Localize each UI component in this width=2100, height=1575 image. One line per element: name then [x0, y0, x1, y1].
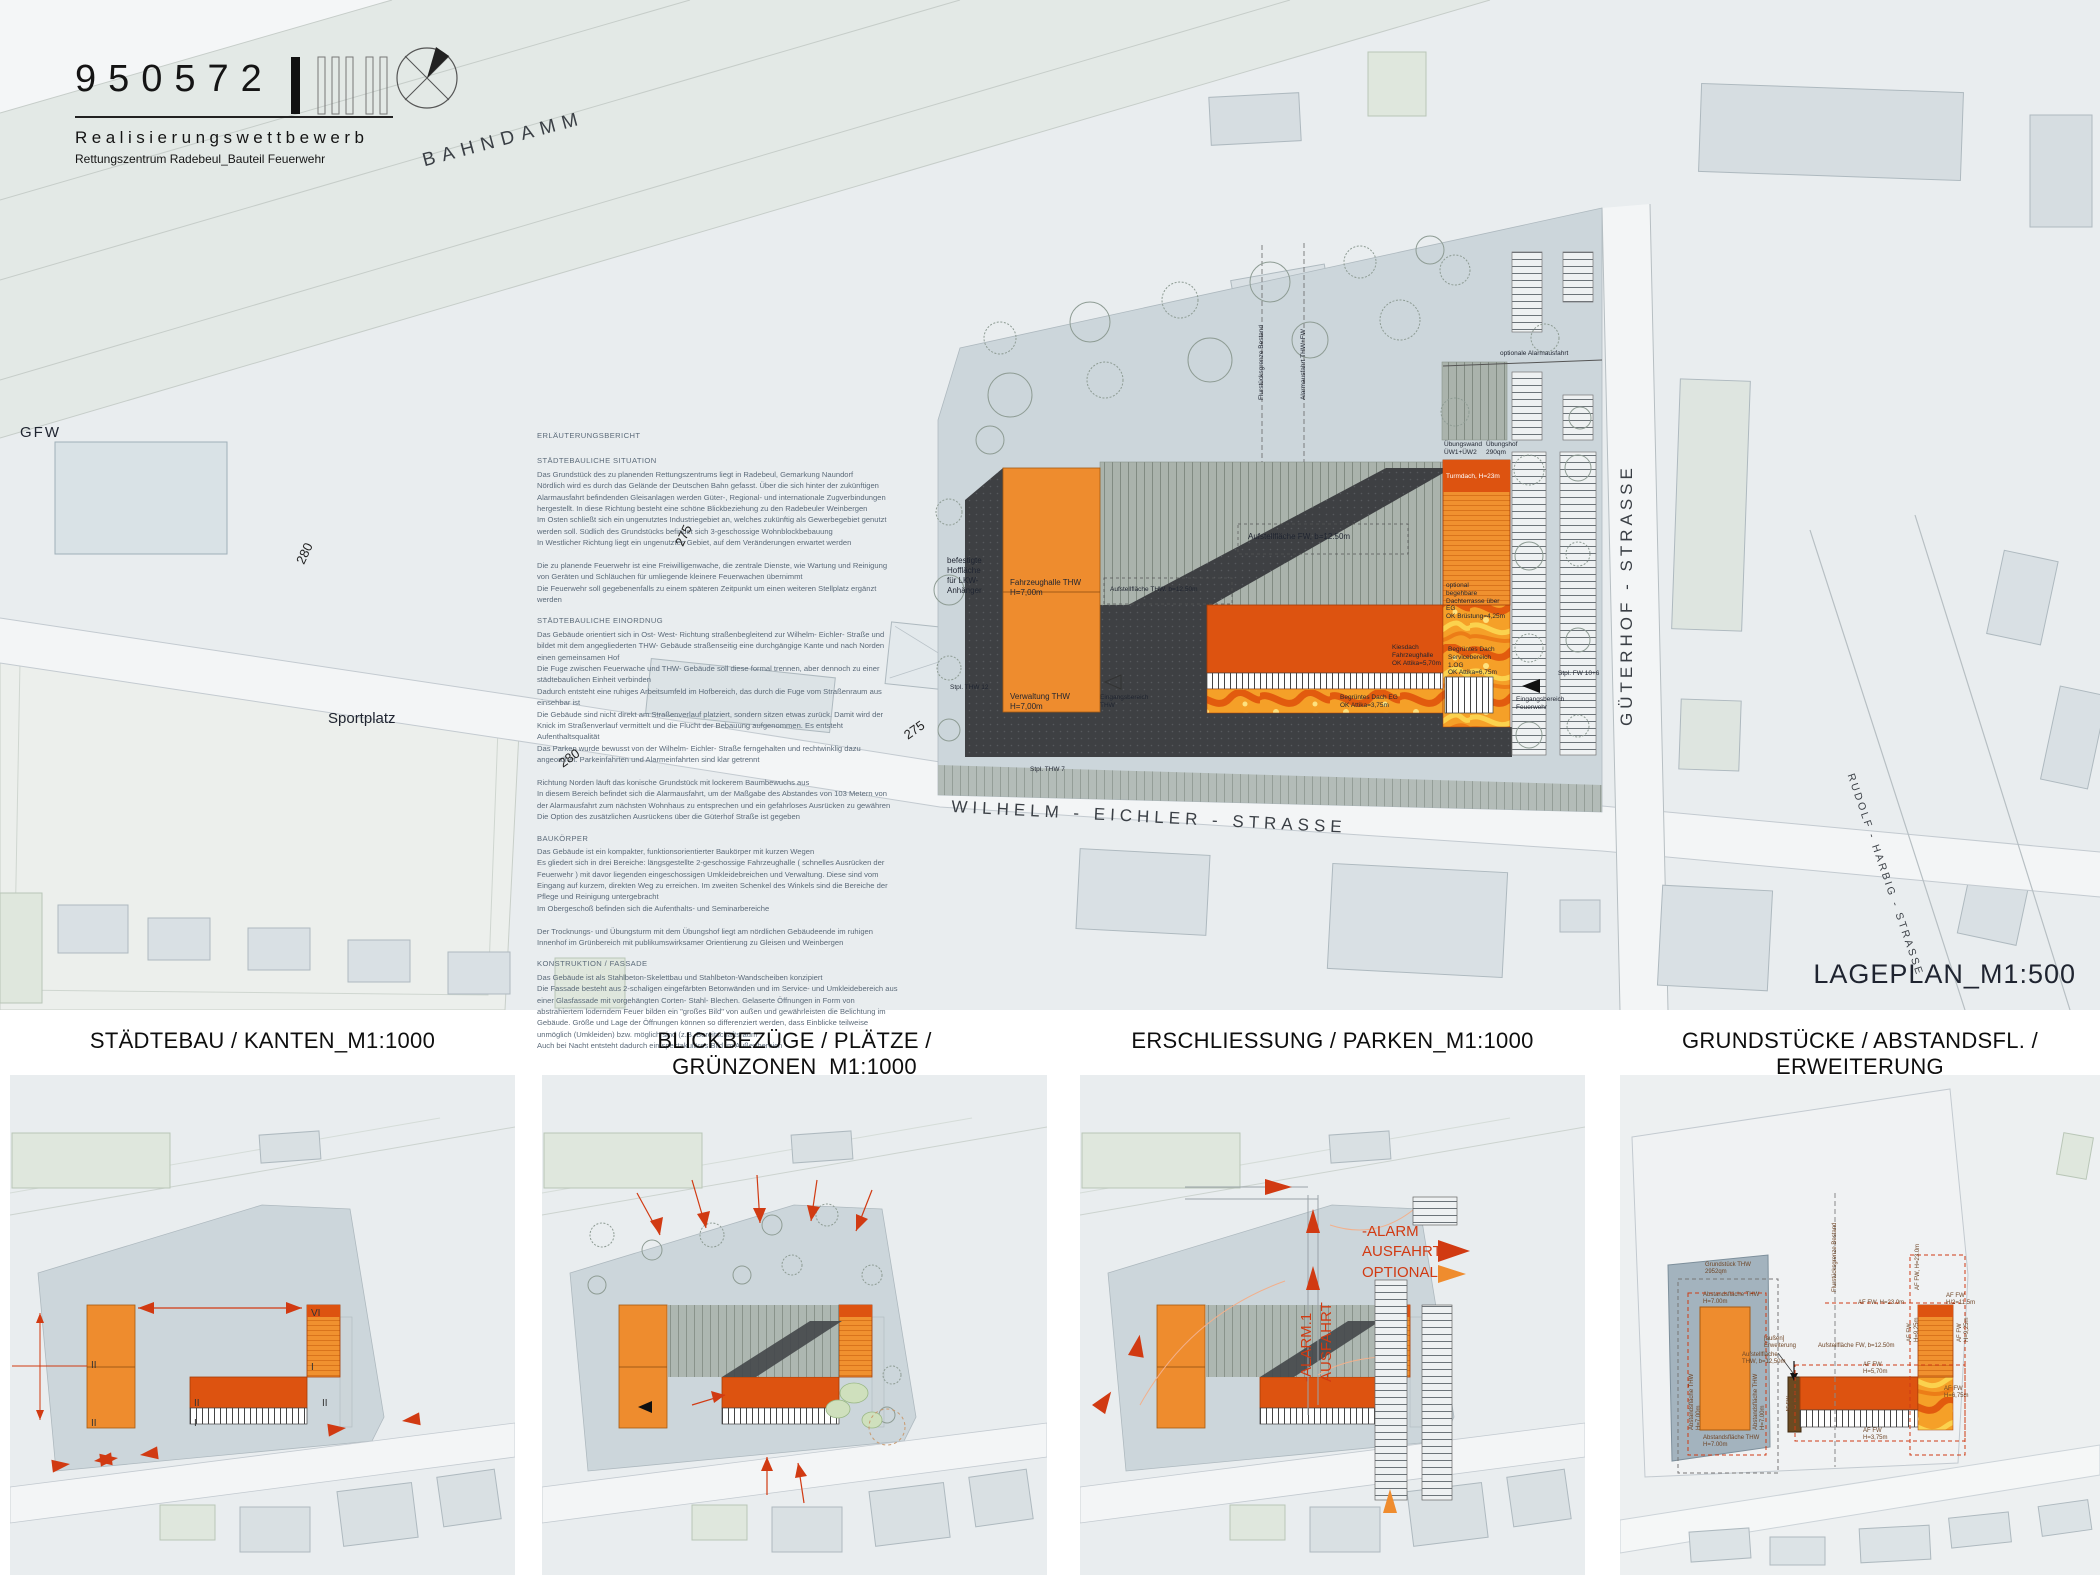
panel-blickbezuege [542, 1075, 1047, 1575]
street-label-gfw: GFW [20, 424, 61, 443]
explanatory-report: ERLÄUTERUNGSBERICHT STÄDTEBAULICHE SITUA… [537, 420, 899, 1060]
project-title: Rettungszentrum Radebeul_Bauteil Feuerwe… [75, 152, 325, 166]
panel-title-staedtebau: STÄDTEBAU / KANTEN_M1:1000 [10, 1028, 515, 1060]
alarm-ausfahrt-optional-label: -ALARM AUSFAHRT OPTIONAL [1362, 1222, 1442, 1283]
annotation-flurstuecksgrenze: Flurstücksgrenze Bestand [1258, 325, 1266, 400]
abstandsflaeche-label: Abstandsfläche THW H=7.00m [1689, 1374, 1703, 1430]
af-fw-label: AF FW H/2=11.5m [1946, 1293, 1975, 1307]
flurstuecksgrenze-label: Flurstücksgrenze Bestand [1832, 1223, 1839, 1292]
annotation-verwaltung-thw: Verwaltung THW H=7,00m [1010, 692, 1070, 712]
panel-title-blickbezuege: BLICKBEZÜGE / PLÄTZE / GRÜNZONEN_M1:1000 [542, 1028, 1047, 1060]
af-fw-label: AF FW H=5,70m [1863, 1362, 1888, 1376]
annotation-stellplatz-fw: Stpl. FW 10+6 [1558, 670, 1599, 678]
af-fw-label: AF FW, H=23.0m [1858, 1300, 1904, 1307]
annotation-begruentes-dach-eg: Begrüntes Dach EG OK Attika=3,75m [1340, 694, 1398, 710]
report-heading: STÄDTEBAULICHE EINORDNUG [537, 615, 899, 626]
annotation-uebungswand: Übungswand ÜW1+ÜW2 [1444, 441, 1482, 457]
annotation-uebungshof: Übungshof 290qm [1486, 441, 1517, 457]
report-heading: STÄDTEBAULICHE SITUATION [537, 455, 899, 466]
storey-mark: VI [311, 1308, 320, 1319]
report-body: Das Gebäude orientiert sich in Ost- West… [537, 629, 899, 823]
aufstellflaeche-thw-label: Aufstellfläche THW, b=12,50m [1742, 1352, 1786, 1366]
annotation-stellplatz-thw7: Stpl. THW 7 [1030, 766, 1065, 774]
annotation-eingang-fw: Eingangsbereich Feuerwehr [1516, 696, 1564, 712]
erweiterung-label: [außen] Erweiterung [1764, 1336, 1796, 1350]
panel-title-grundstuecke: GRUNDSTÜCKE / ABSTANDSFL. / ERWEITERUNG [1620, 1028, 2100, 1060]
annotation-dachterrasse: optional begehbare Dachterrasse über EG … [1446, 582, 1508, 621]
storey-mark: II [322, 1398, 328, 1409]
storey-mark: II [194, 1398, 200, 1409]
annotation-turmdach: Turmdach, H=23m [1446, 473, 1500, 481]
annotation-stellplatz-thw12: Stpl. THW 12 [950, 684, 989, 692]
report-body: Das Grundstück des zu planenden Rettungs… [537, 469, 899, 606]
header-rule [75, 116, 393, 118]
abstandsflaeche-label: Abstandsfläche THW H=7.00m [1753, 1374, 1767, 1430]
site-plan-area: 950572 Realisierungswettbewerb Rettungsz… [0, 0, 2100, 1010]
street-label-sportplatz: Sportplatz [328, 710, 396, 729]
af-fw-label: AF FW H=9,25m [1957, 1317, 1971, 1342]
report-title: ERLÄUTERUNGSBERICHT [537, 430, 899, 441]
af-fw-label: AF FW H=2,88m [1786, 1392, 1798, 1412]
storey-mark: II [91, 1418, 97, 1429]
annotation-hofflaeche: befestigte Hoffläche für LKW-Anhänger [947, 556, 1005, 596]
competition-title: Realisierungswettbewerb [75, 128, 368, 148]
annotation-optionale-alarmausfahrt: optionale Alarmausfahrt [1500, 350, 1568, 358]
grundstueck-thw-label: Grundstück THW 2952qm [1705, 1262, 1751, 1276]
annotation-begruentes-dach-og: Begrüntes Dach Servicebereich 1.OG OK At… [1448, 646, 1508, 677]
storey-mark: I [194, 1418, 197, 1429]
annotation-eingang-thw: Eingangsbereich THW [1100, 694, 1148, 710]
plan-scale-label: LAGEPLAN_M1:500 [1813, 958, 2076, 992]
report-body: Das Gebäude ist ein kompakter, funktions… [537, 846, 899, 949]
af-fw-label: AF FW, H=23.0m [1915, 1244, 1922, 1290]
report-heading: BAUKÖRPER [537, 833, 899, 844]
af-fw-label: AF FW H=6,75m [1944, 1386, 1969, 1400]
annotation-kiesdach: Kiesdach Fahrzeughalle OK Attika=5,70m [1392, 644, 1441, 667]
panel-grundstuecke-abstand [1620, 1075, 2100, 1575]
storey-mark: I [311, 1362, 314, 1373]
street-label-gueterhof: GÜTERHOF - STRASSE [1616, 464, 1637, 726]
panel-title-erschliessung: ERSCHLIESSUNG / PARKEN_M1:1000 [1080, 1028, 1585, 1060]
entry-number: 950572 [75, 58, 274, 101]
annotation-fahrzeughalle-thw: Fahrzeughalle THW H=7,00m [1010, 578, 1081, 598]
aufstellflaeche-fw-label: Aufstellfläche FW, b=12.50m [1818, 1343, 1895, 1350]
af-fw-label: AF FW H=9,25m [1907, 1317, 1921, 1342]
alarm1-ausfahrt-label: -ALARM.1 AUSFAHRT [1297, 1302, 1338, 1382]
competition-board: 950572 Realisierungswettbewerb Rettungsz… [0, 0, 2100, 1575]
report-heading: KONSTRUKTION / FASSADE [537, 958, 899, 969]
annotation-alarmausfahrt: Alarmausfahrt THW+FW [1300, 329, 1308, 400]
annotation-aufstellflaeche-thw: Aufstellfläche THW, b=12.50m [1110, 586, 1198, 594]
storey-mark: II [91, 1360, 97, 1371]
panel-staedtebau-kanten [10, 1075, 515, 1575]
annotation-aufstellflaeche-fw: Aufstellfläche FW, b=12.50m [1248, 532, 1350, 542]
abstandsflaeche-label: Abstandsfläche THW H=7.00m [1703, 1292, 1759, 1306]
abstandsflaeche-label: Abstandsfläche THW H=7.00m [1703, 1435, 1759, 1449]
af-fw-label: AF FW H=3,75m [1863, 1428, 1888, 1442]
